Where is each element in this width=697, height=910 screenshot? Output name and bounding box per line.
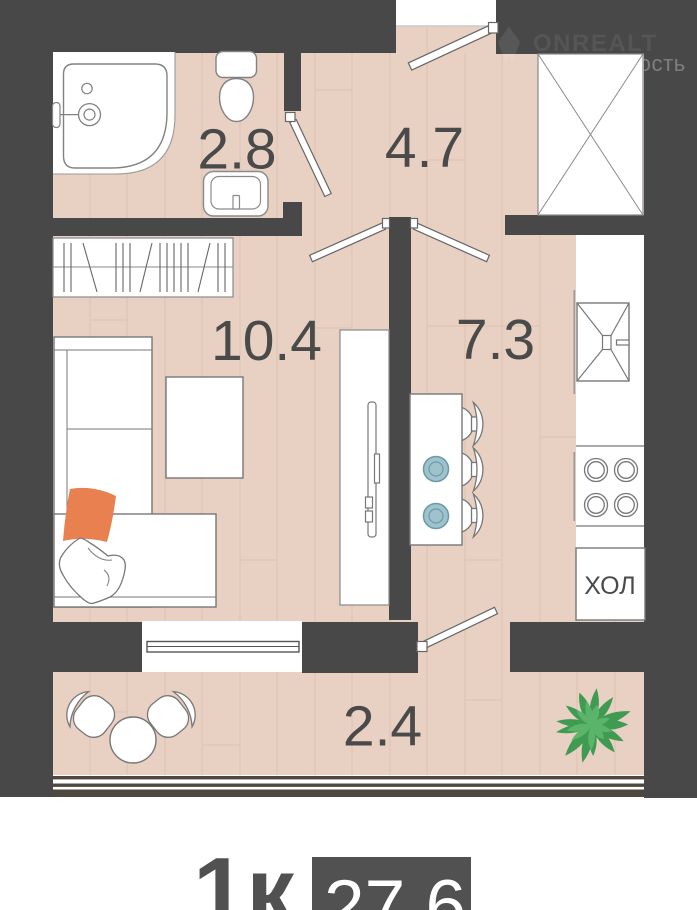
svg-text:2.8: 2.8 xyxy=(197,118,276,182)
svg-text:10.4: 10.4 xyxy=(211,309,322,373)
svg-text:4.7: 4.7 xyxy=(385,116,464,180)
svg-text:2.4: 2.4 xyxy=(343,695,422,759)
svg-text:7.3: 7.3 xyxy=(456,308,535,372)
svg-text:27.6: 27.6 xyxy=(324,866,466,910)
svg-text:ХОЛ: ХОЛ xyxy=(584,572,635,600)
svg-text:1к: 1к xyxy=(193,838,295,910)
